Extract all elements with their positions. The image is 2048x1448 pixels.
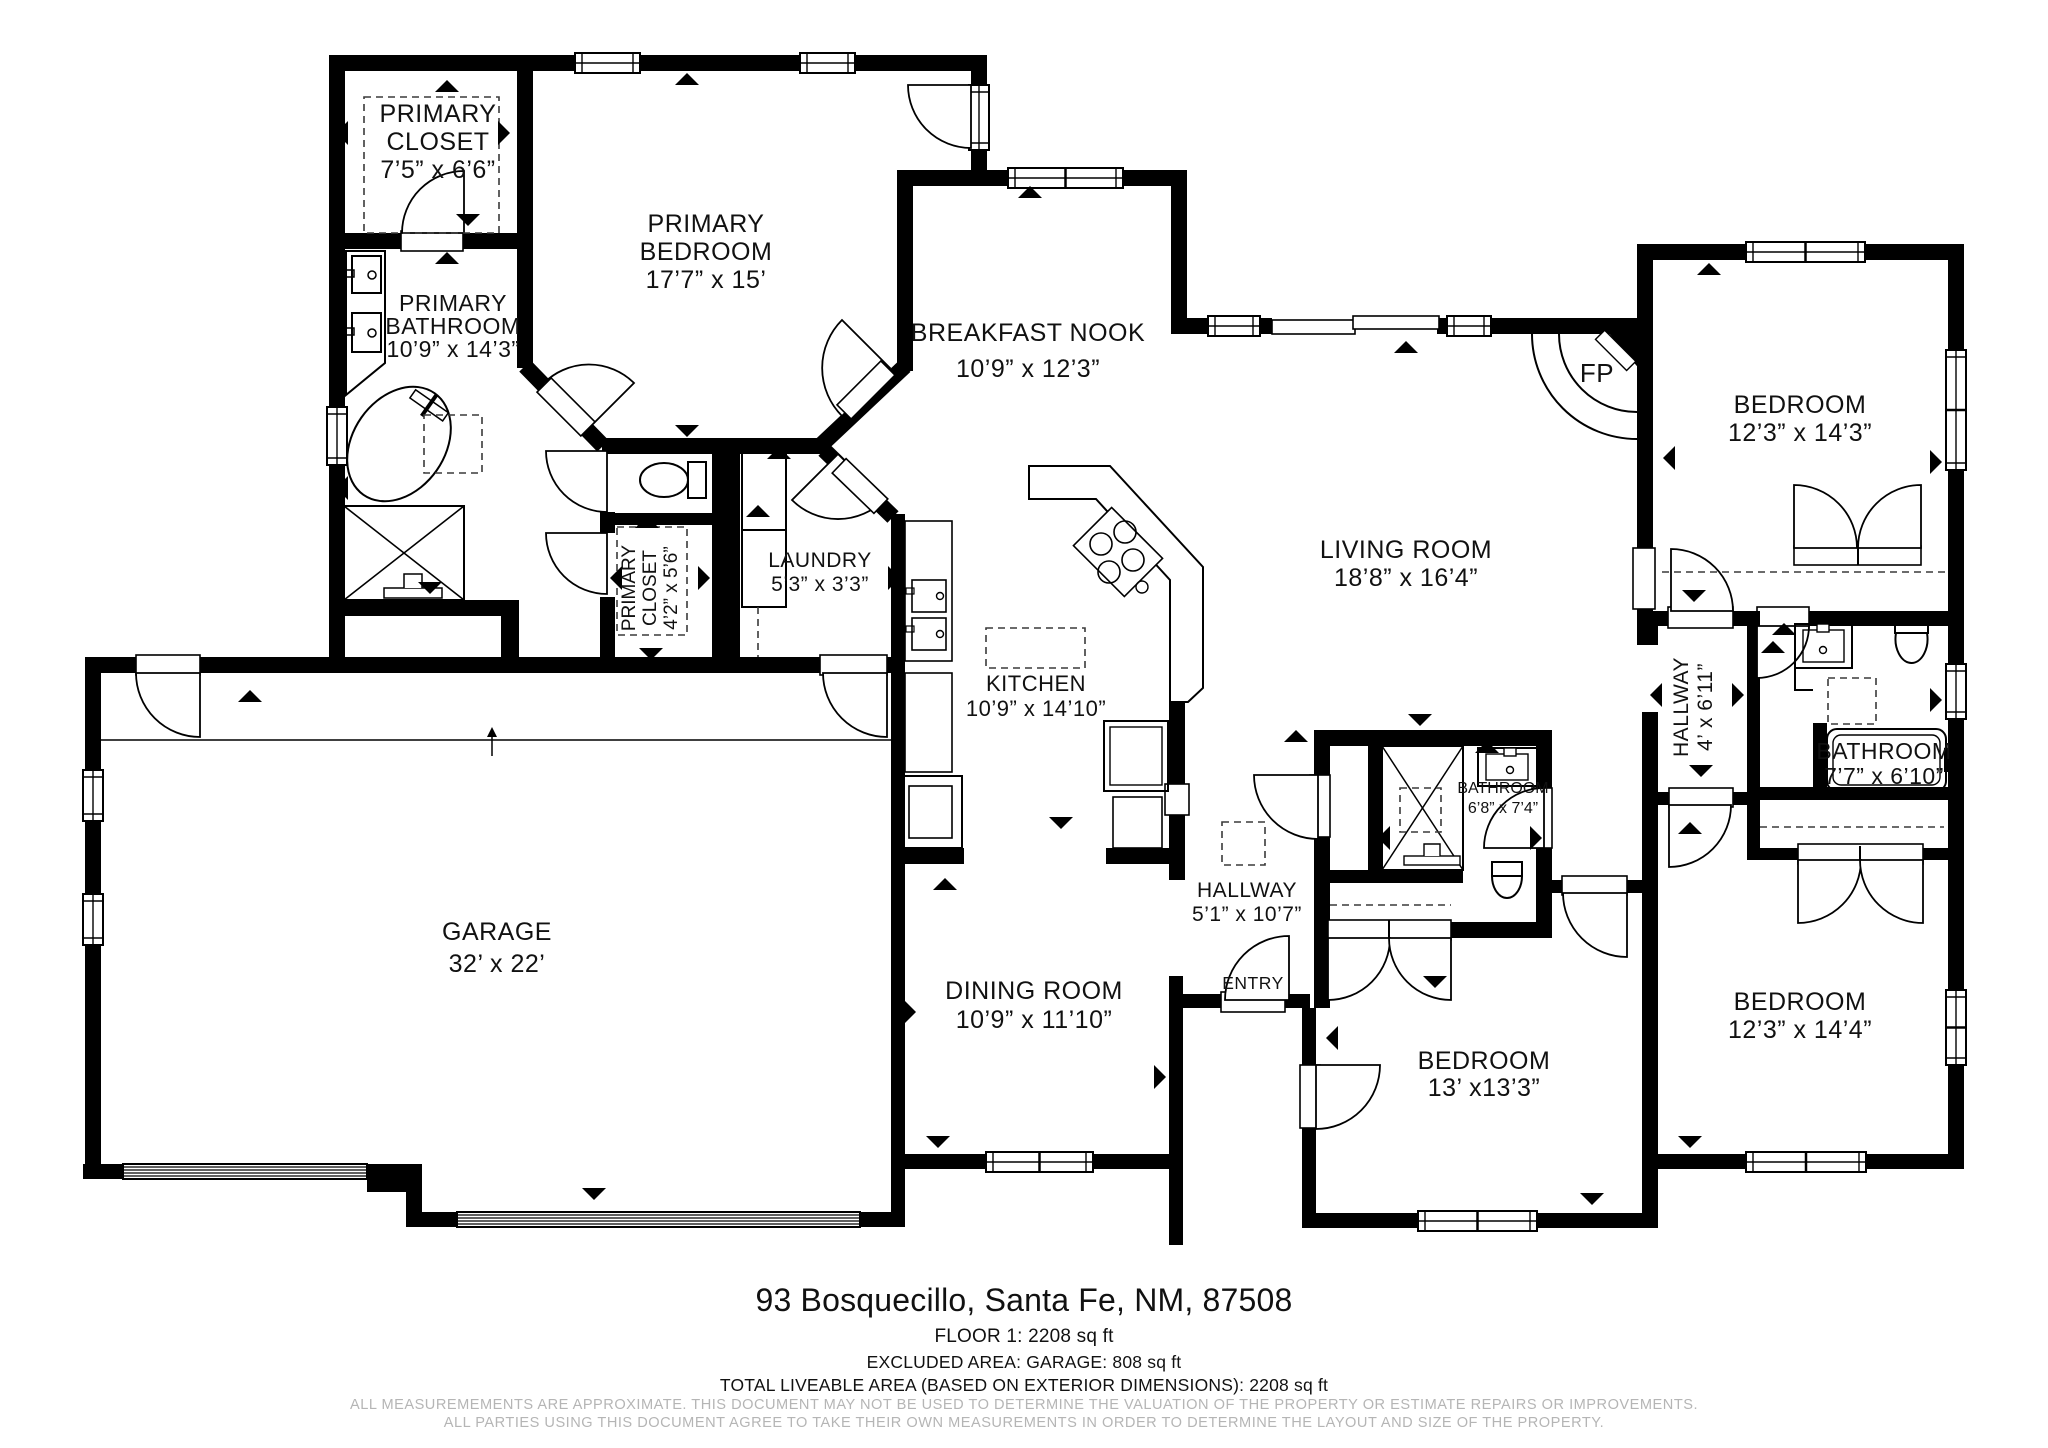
- svg-text:10’9” x 14’3”: 10’9” x 14’3”: [386, 336, 519, 362]
- svg-text:17’7” x 15’: 17’7” x 15’: [646, 266, 767, 294]
- svg-text:PRIMARY: PRIMARY: [648, 210, 765, 238]
- svg-text:ALL PARTIES USING THIS DOCUMEN: ALL PARTIES USING THIS DOCUMENT AGREE TO…: [444, 1415, 1604, 1431]
- svg-text:5’1” x 10’7”: 5’1” x 10’7”: [1192, 903, 1302, 926]
- svg-text:DINING ROOM: DINING ROOM: [945, 977, 1123, 1005]
- svg-text:ALL MEASUREMEMENTS ARE APPROXI: ALL MEASUREMEMENTS ARE APPROXIMATE. THIS…: [350, 1397, 1698, 1413]
- svg-text:BREAKFAST NOOK: BREAKFAST NOOK: [911, 319, 1145, 347]
- svg-text:12’3” x 14’3”: 12’3” x 14’3”: [1728, 419, 1872, 447]
- svg-text:KITCHEN: KITCHEN: [986, 671, 1086, 696]
- svg-text:BEDROOM: BEDROOM: [1418, 1047, 1551, 1075]
- svg-text:HALLWAY: HALLWAY: [1197, 879, 1297, 902]
- svg-text:TOTAL LIVEABLE AREA (BASED ON: TOTAL LIVEABLE AREA (BASED ON EXTERIOR D…: [720, 1375, 1328, 1395]
- svg-text:12’3” x 14’4”: 12’3” x 14’4”: [1728, 1016, 1872, 1044]
- svg-text:CLOSET: CLOSET: [640, 550, 661, 626]
- svg-text:LIVING ROOM: LIVING ROOM: [1320, 536, 1492, 564]
- svg-text:CLOSET: CLOSET: [386, 128, 489, 156]
- svg-text:BEDROOM: BEDROOM: [1734, 391, 1867, 419]
- svg-text:10’9” x 12’3”: 10’9” x 12’3”: [956, 355, 1100, 383]
- svg-text:HALLWAY: HALLWAY: [1670, 657, 1693, 757]
- svg-text:LAUNDRY: LAUNDRY: [768, 549, 871, 572]
- svg-text:PRIMARY: PRIMARY: [380, 100, 497, 128]
- svg-text:BATHROOM: BATHROOM: [1457, 780, 1548, 797]
- svg-text:7’5” x 6’6”: 7’5” x 6’6”: [380, 156, 495, 184]
- svg-text:BEDROOM: BEDROOM: [640, 238, 773, 266]
- svg-text:5’3” x 3’3”: 5’3” x 3’3”: [771, 573, 869, 596]
- svg-text:BATHROOM: BATHROOM: [1816, 738, 1951, 764]
- svg-text:10’9” x 14’10”: 10’9” x 14’10”: [966, 696, 1106, 721]
- svg-text:32’ x 22’: 32’ x 22’: [449, 950, 546, 978]
- svg-text:10’9” x 11’10”: 10’9” x 11’10”: [956, 1006, 1113, 1034]
- svg-text:13’ x13’3”: 13’ x13’3”: [1428, 1074, 1540, 1102]
- svg-text:BEDROOM: BEDROOM: [1734, 988, 1867, 1016]
- svg-text:4’ x 6’11”: 4’ x 6’11”: [1694, 663, 1717, 751]
- svg-text:FP: FP: [1580, 358, 1614, 388]
- svg-text:4’2” x 5’6”: 4’2” x 5’6”: [661, 546, 682, 629]
- svg-text:EXCLUDED AREA: GARAGE: 808 sq: EXCLUDED AREA: GARAGE: 808 sq ft: [867, 1352, 1182, 1372]
- svg-text:93 Bosquecillo, Santa Fe, NM,: 93 Bosquecillo, Santa Fe, NM, 87508: [755, 1282, 1292, 1318]
- svg-text:6’8” x 7’4”: 6’8” x 7’4”: [1468, 800, 1538, 817]
- svg-text:18’8” x 16’4”: 18’8” x 16’4”: [1334, 564, 1478, 592]
- svg-text:ENTRY: ENTRY: [1222, 973, 1284, 993]
- svg-text:FLOOR 1: 2208 sq ft: FLOOR 1: 2208 sq ft: [934, 1326, 1114, 1347]
- svg-text:7’7” x 6’10”: 7’7” x 6’10”: [1824, 763, 1944, 789]
- svg-text:GARAGE: GARAGE: [442, 918, 552, 946]
- svg-text:PRIMARY: PRIMARY: [619, 545, 640, 632]
